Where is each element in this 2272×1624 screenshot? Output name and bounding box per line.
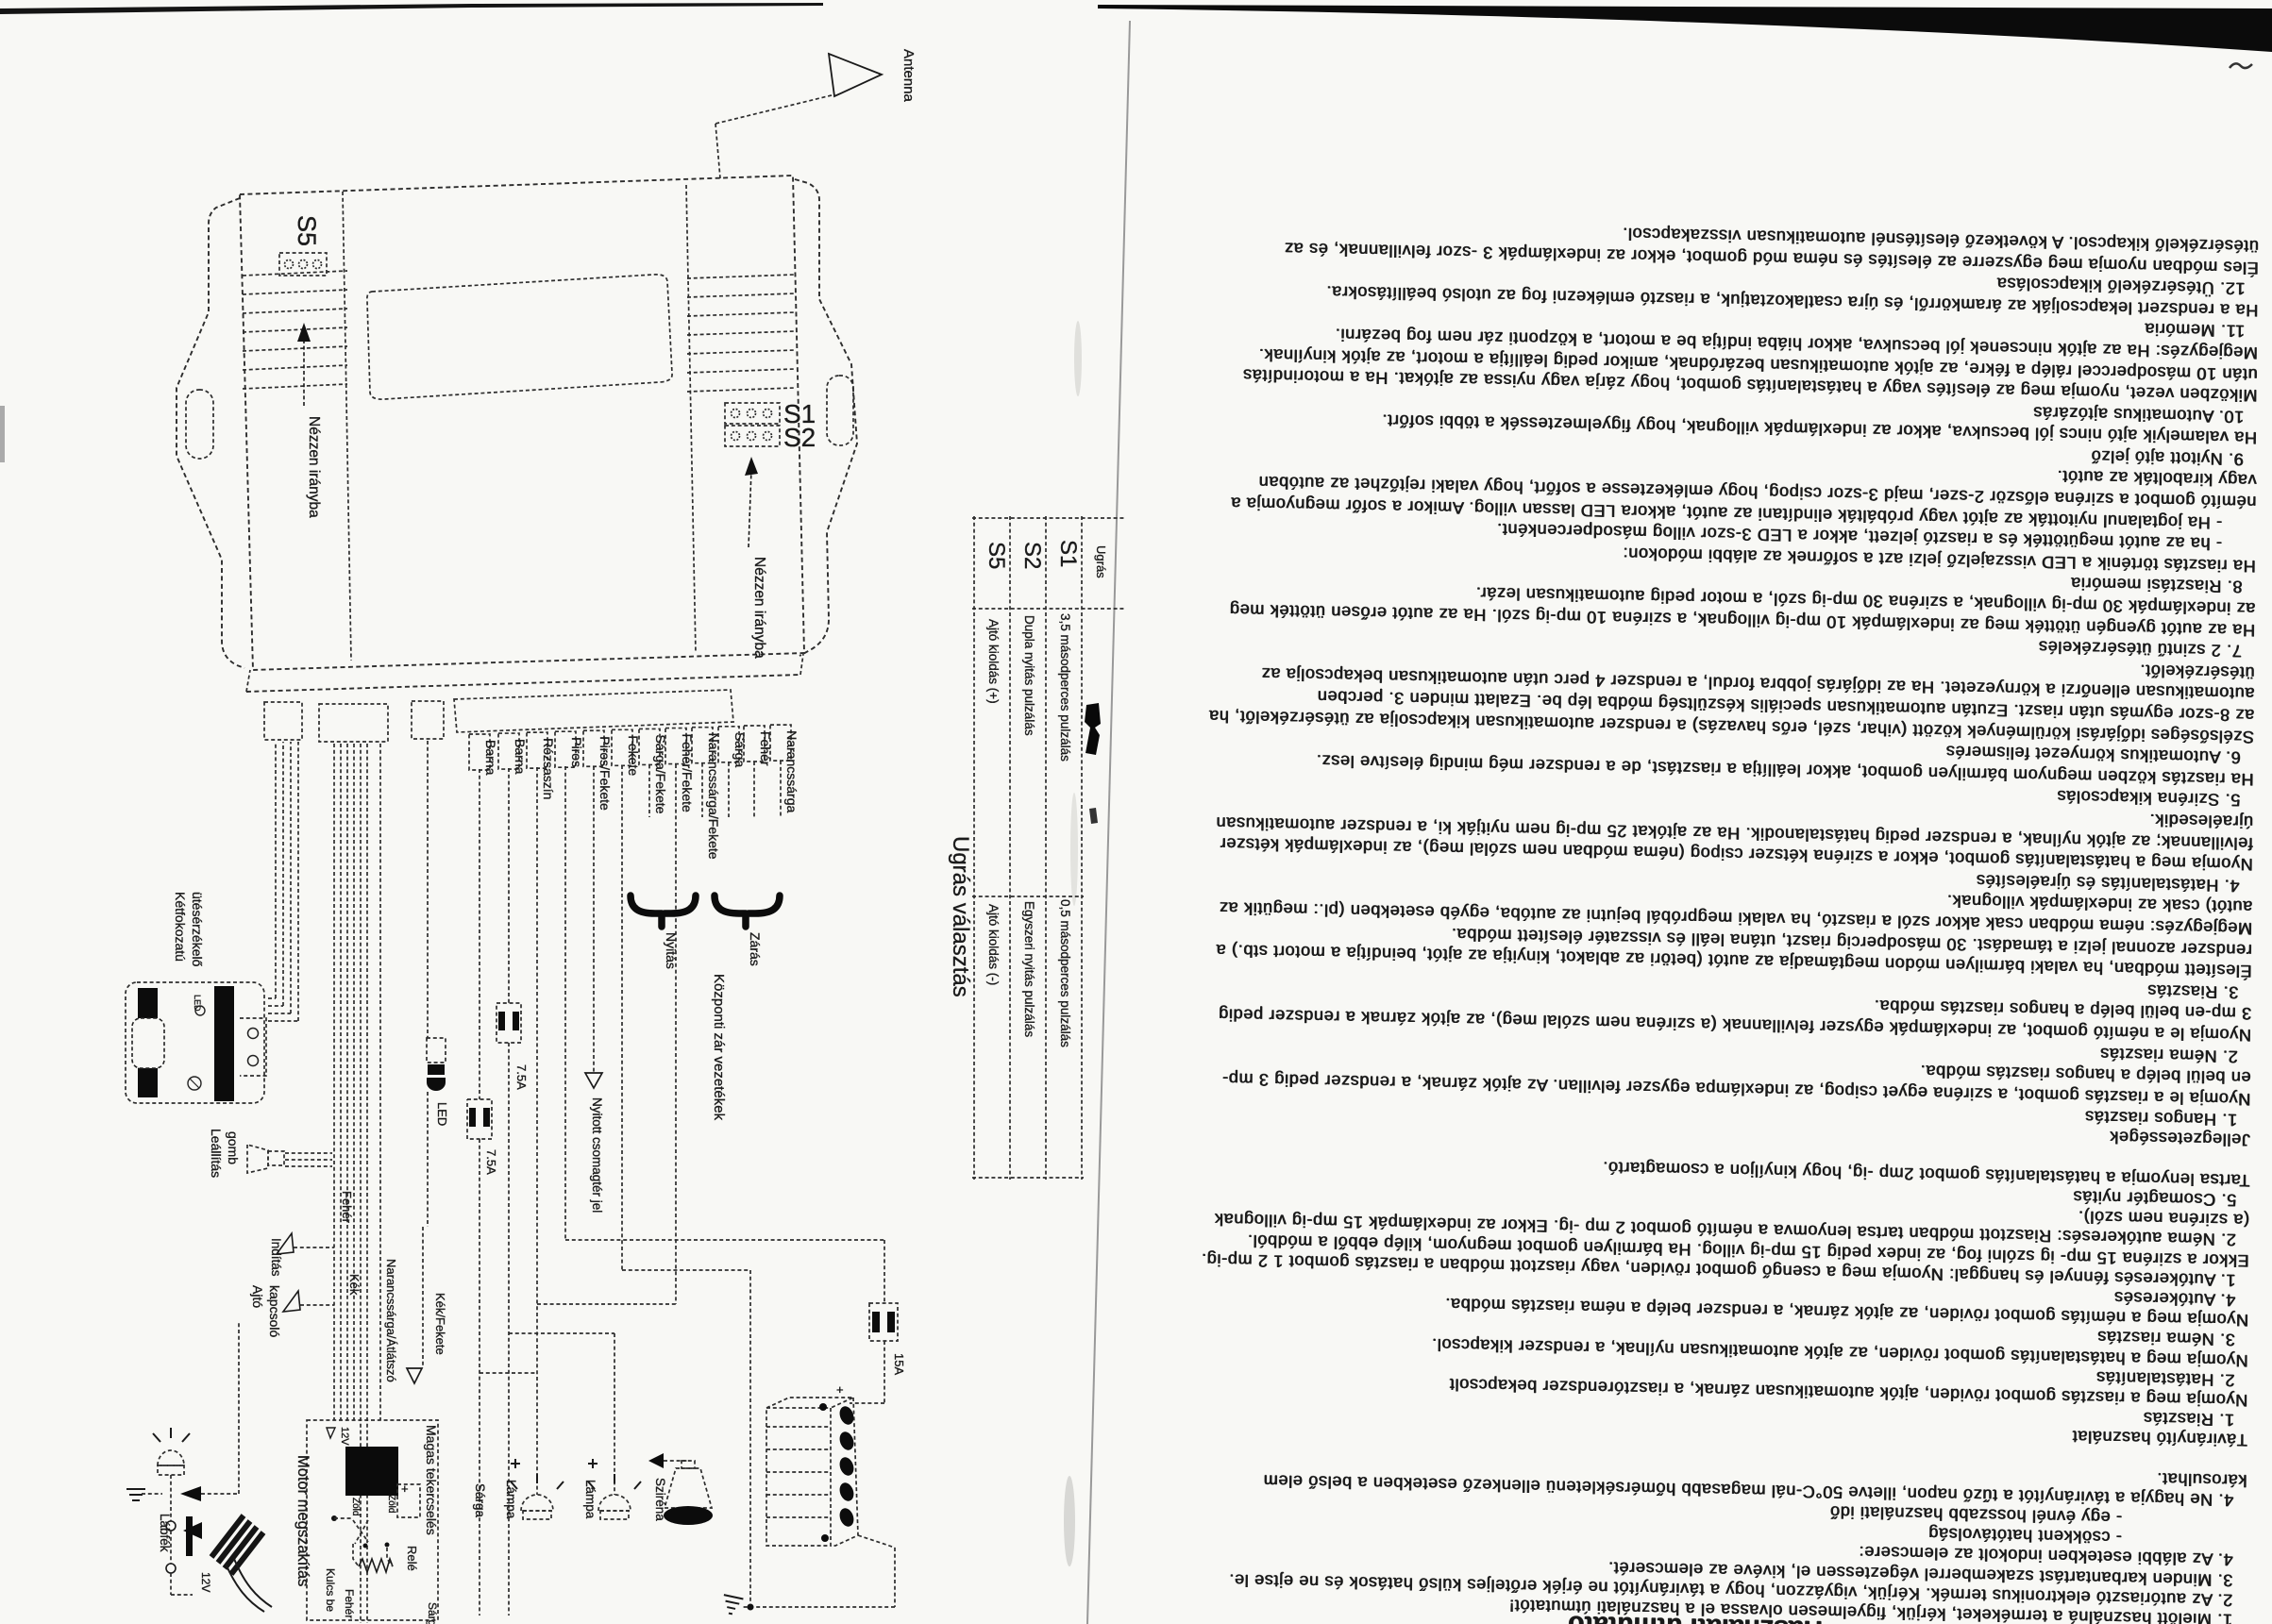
svg-text:Ajtó: Ajtó <box>250 1285 265 1308</box>
svg-text:Kék: Kék <box>347 1274 362 1296</box>
svg-text:12V: 12V <box>339 1427 350 1446</box>
svg-text:LED: LED <box>435 1102 449 1126</box>
svg-text:3,5 másodperces pulzálás: 3,5 másodperces pulzálás <box>1058 613 1072 762</box>
svg-text:Zöld: Zöld <box>350 1498 361 1515</box>
svg-text:LED: LED <box>193 995 202 1012</box>
svg-text:Ajtó kioldás (+): Ajtó kioldás (+) <box>986 619 1001 704</box>
svg-text:Központi zár vezetékek: Központi zár vezetékek <box>711 974 727 1121</box>
svg-text:kapcsoló: kapcsoló <box>267 1285 282 1337</box>
svg-text:Nézzen irányba: Nézzen irányba <box>306 416 322 518</box>
svg-text:S1: S1 <box>1055 540 1081 567</box>
svg-text:Kétfokozatú: Kétfokozatú <box>173 892 188 962</box>
svg-text:S2: S2 <box>1019 542 1045 569</box>
svg-text:Lámpa: Lámpa <box>583 1480 597 1519</box>
svg-text:Zöld: Zöld <box>386 1495 396 1513</box>
svg-text:S2: S2 <box>783 423 816 452</box>
svg-text:7.5A: 7.5A <box>484 1149 498 1175</box>
svg-text:Sárga: Sárga <box>426 1602 439 1624</box>
svg-text:0,5 másodperces pulzálás: 0,5 másodperces pulzálás <box>1058 899 1072 1047</box>
svg-text:Sárga/Fekete: Sárga/Fekete <box>653 734 668 813</box>
svg-text:Motor megszakítás: Motor megszakítás <box>295 1455 311 1586</box>
svg-text:Rózsaszín: Rózsaszín <box>541 738 556 799</box>
svg-text:Fehér: Fehér <box>343 1589 356 1618</box>
svg-text:Nyitott csomagtér jel: Nyitott csomagtér jel <box>590 1097 604 1213</box>
svg-text:Magas tekercselés: Magas tekercselés <box>424 1425 439 1535</box>
svg-text:Dupla nyitás pulzálás: Dupla nyitás pulzálás <box>1022 615 1036 736</box>
svg-text:Barna: Barna <box>483 740 498 776</box>
svg-text:12V: 12V <box>199 1572 212 1592</box>
svg-text:Sárga: Sárga <box>732 732 748 768</box>
svg-text:15A: 15A <box>892 1353 906 1375</box>
svg-text:Kulcs be: Kulcs be <box>324 1568 337 1612</box>
svg-text:Ajtó kioldás (-): Ajtó kioldás (-) <box>986 904 1001 985</box>
svg-text:Sárga: Sárga <box>473 1483 487 1518</box>
svg-text:Leállítás: Leállítás <box>209 1129 224 1178</box>
svg-text:Lámpa: Lámpa <box>504 1480 518 1519</box>
svg-text:gomb: gomb <box>226 1131 241 1164</box>
svg-text:S5: S5 <box>984 542 1009 569</box>
svg-text:Narancssárga/Átlátszó: Narancssárga/Átlátszó <box>384 1259 398 1382</box>
svg-text:S5: S5 <box>293 215 321 246</box>
svg-text:Antenna: Antenna <box>900 49 917 103</box>
svg-text:Egyszeri nyitás pulzálás: Egyszeri nyitás pulzálás <box>1022 901 1036 1037</box>
svg-text:Nyitás: Nyitás <box>664 932 679 969</box>
svg-text:Piros/Fekete: Piros/Fekete <box>597 736 613 811</box>
svg-text:Ugrás választás: Ugrás választás <box>948 836 973 997</box>
svg-text:Ugrás: Ugrás <box>1094 545 1108 578</box>
svg-text:Nézzen irányba: Nézzen irányba <box>751 557 767 659</box>
svg-text:Piros: Piros <box>569 737 584 767</box>
svg-text:+: + <box>836 1382 844 1397</box>
svg-text:Fehér: Fehér <box>758 731 773 766</box>
svg-text:Fehér: Fehér <box>340 1191 354 1224</box>
svg-text:Indítás: Indítás <box>269 1238 283 1277</box>
svg-text:Zárás: Zárás <box>748 932 763 966</box>
svg-text:Barna: Barna <box>513 739 528 775</box>
svg-text:Relé: Relé <box>405 1546 419 1571</box>
svg-text:Narancssárga/Fekete: Narancssárga/Fekete <box>706 733 721 860</box>
svg-text:Kék/Fekete: Kék/Fekete <box>433 1293 447 1355</box>
svg-text:Lábfék: Lábfék <box>158 1514 172 1552</box>
svg-text:Narancssárga: Narancssárga <box>784 730 799 812</box>
svg-text:7.5A: 7.5A <box>514 1064 529 1090</box>
svg-text:Fehér/Fekete: Fehér/Fekete <box>680 734 695 812</box>
svg-text:Sziréna: Sziréna <box>653 1478 667 1521</box>
svg-text:ütésérzékelő: ütésérzékelő <box>190 892 205 967</box>
